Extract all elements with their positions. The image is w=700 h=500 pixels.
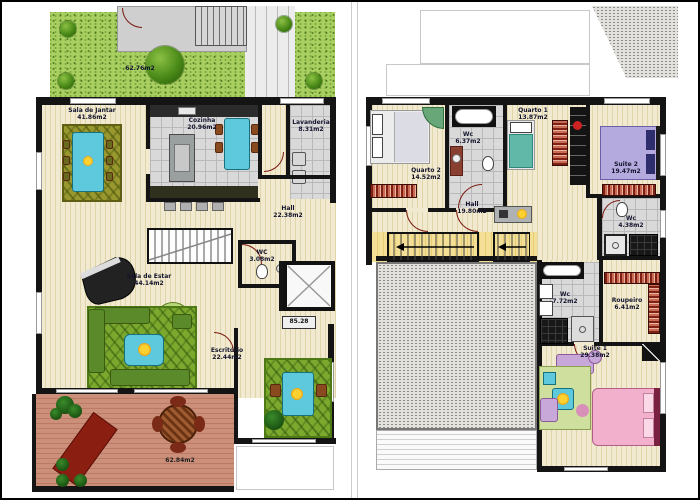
kitchen-counter: [150, 105, 258, 117]
plan-lower-floor: 62.76m2 Sala de Jantar 41.86m2: [30, 6, 348, 496]
pouf: [576, 404, 589, 417]
chair: [270, 384, 281, 397]
room-label-sala-jantar: Sala de Jantar 41.86m2: [44, 108, 140, 122]
glass-roof: [376, 430, 537, 470]
room-area: 19.80m2: [450, 209, 494, 216]
wall: [32, 394, 36, 488]
table-flower: [557, 393, 569, 405]
window: [382, 98, 430, 104]
closet-wall: [570, 107, 586, 185]
wall: [602, 256, 664, 260]
exterior-stairs: [195, 6, 247, 46]
pillow: [646, 130, 655, 150]
plant-icon: [68, 404, 82, 418]
room-label-sala-estar: Sala de Estar 44.14m2: [104, 274, 194, 288]
room-label-roupeiro: Roupeiro 6.41m2: [604, 298, 650, 312]
wet-area: [540, 318, 568, 344]
sofa: [110, 369, 190, 386]
room-label-hall-upper: Hall 19.80m2: [450, 202, 494, 216]
desk-flower: [291, 388, 303, 400]
shower-drain: [579, 326, 586, 333]
wall: [146, 105, 150, 149]
room-area: 13.87m2: [504, 115, 562, 122]
wardrobe: [552, 120, 568, 166]
room-label-wc-suite2: Wc 4.38m2: [606, 216, 656, 230]
lamp-icon: [517, 209, 527, 219]
elevator: [283, 261, 335, 311]
sheet-divider-line: [357, 2, 358, 500]
room-area: 20.96m2: [170, 125, 234, 132]
blanket: [509, 134, 533, 168]
room-label-quarto2: Quarto 2 14.52m2: [396, 168, 456, 182]
plant-icon: [50, 408, 62, 420]
headboard: [654, 388, 660, 446]
wardrobe: [370, 184, 417, 198]
room-label-quarto1: Quarto 1 13.87m2: [504, 108, 562, 122]
pillow: [510, 122, 532, 133]
armchair: [540, 398, 558, 422]
chair: [106, 172, 113, 181]
room-label-hall: Hall 22.38m2: [258, 206, 318, 220]
sink: [452, 154, 461, 163]
bathtub-basin: [455, 109, 493, 124]
roof-below: [236, 446, 334, 490]
wardrobe: [602, 184, 656, 196]
window: [56, 389, 118, 393]
wall: [258, 175, 336, 179]
roof-gravel: [592, 6, 678, 78]
table-centerpiece: [83, 156, 93, 166]
terrace-area-label: 62.84m2: [140, 458, 220, 465]
pillow: [372, 137, 383, 158]
pillow: [643, 393, 654, 413]
wall: [597, 198, 602, 260]
stool: [212, 202, 224, 211]
sofa: [88, 309, 105, 373]
room-area: 6.41m2: [604, 305, 650, 312]
shower-drain: [612, 242, 619, 249]
stool: [196, 202, 208, 211]
toilet: [482, 156, 494, 171]
plant-icon: [264, 410, 284, 430]
chair: [194, 416, 205, 432]
tree-icon: [306, 73, 322, 89]
tree-icon: [58, 73, 74, 89]
double-height-void: [376, 262, 537, 430]
tree-icon: [60, 21, 76, 37]
level-mark: 85.28: [282, 316, 316, 329]
window: [280, 98, 324, 104]
garden-area-label: 62.76m2: [100, 66, 180, 73]
window: [660, 134, 666, 176]
plant-icon: [56, 474, 69, 487]
wall: [586, 105, 590, 194]
wall: [150, 198, 260, 202]
room-label-wc-suite1: Wc 7.72m2: [542, 292, 588, 306]
chair: [63, 140, 70, 149]
room-area: 4.38m2: [606, 223, 656, 230]
room-area: 22.38m2: [258, 213, 318, 220]
room-area: 8.31m2: [288, 127, 334, 134]
wall: [234, 328, 238, 438]
corner-tv-unit: [642, 344, 660, 361]
window: [36, 152, 42, 190]
floor-cushion: [543, 372, 556, 385]
roof-outline: [420, 10, 590, 64]
plan-upper-floor: Quarto 2 14.52m2 Wc 6.37m2 Quarto 1 13.8…: [360, 6, 678, 496]
room-area: 44.14m2: [104, 281, 194, 288]
decor-item: [499, 210, 508, 218]
round-table: [158, 404, 198, 444]
chair: [215, 142, 223, 153]
blanket: [394, 112, 428, 162]
headboard: [656, 126, 660, 180]
room-label-escritorio: Escritório 22.44m2: [192, 348, 262, 362]
window: [252, 439, 316, 443]
room-area: 6.37m2: [442, 139, 494, 146]
room-label-lavanderia: Lavanderia 8.31m2: [288, 120, 334, 134]
table-flower: [138, 343, 151, 356]
chair: [170, 442, 186, 453]
cooktop: [174, 144, 190, 172]
sheet-divider-line: [351, 2, 352, 500]
room-label-wc-quartos: Wc 6.37m2: [442, 132, 494, 146]
lamp-icon: [573, 121, 582, 130]
room-area: 19.47m2: [600, 169, 652, 176]
plant-icon: [74, 474, 87, 487]
pillow: [372, 114, 383, 135]
plant-icon: [56, 458, 69, 471]
window: [36, 292, 42, 334]
wet-area: [629, 234, 658, 256]
room-area: 41.86m2: [44, 115, 140, 122]
stairs: [147, 228, 233, 264]
wall: [238, 240, 296, 244]
room-area: 22.44m2: [192, 355, 262, 362]
toilet: [256, 264, 268, 279]
chair: [63, 156, 70, 165]
bathtub-basin: [543, 265, 581, 276]
chair: [152, 416, 163, 432]
floorplan-canvas: 62.76m2 Sala de Jantar 41.86m2: [0, 0, 700, 500]
kitchen-counter-low: [150, 186, 258, 198]
room-label-suite1: Suite 1 29.38m2: [572, 346, 618, 360]
chair: [106, 156, 113, 165]
armchair: [172, 314, 192, 329]
chair: [63, 172, 70, 181]
room-area: 7.72m2: [542, 299, 588, 306]
window: [604, 98, 650, 104]
window: [660, 210, 666, 238]
chair: [106, 140, 113, 149]
window: [134, 389, 208, 393]
room-area: 14.52m2: [396, 175, 456, 182]
pillow: [643, 418, 654, 438]
wall: [445, 105, 449, 208]
window: [70, 98, 116, 104]
room-label-suite2: Suite 2 19.47m2: [600, 162, 652, 176]
wall: [258, 105, 262, 179]
washer: [292, 152, 306, 166]
kitchen-sink: [178, 107, 196, 115]
stairs: [386, 232, 530, 262]
room-area: 29.38m2: [572, 353, 618, 360]
window: [660, 362, 666, 414]
roof-outline: [386, 64, 590, 96]
chair: [316, 384, 327, 397]
tree-icon: [276, 16, 292, 32]
stool: [164, 202, 176, 211]
stool: [180, 202, 192, 211]
wardrobe: [604, 272, 660, 284]
window: [564, 467, 608, 471]
wall: [599, 260, 603, 346]
room-label-cozinha: Cozinha 20.96m2: [170, 118, 234, 132]
chair: [170, 396, 186, 407]
